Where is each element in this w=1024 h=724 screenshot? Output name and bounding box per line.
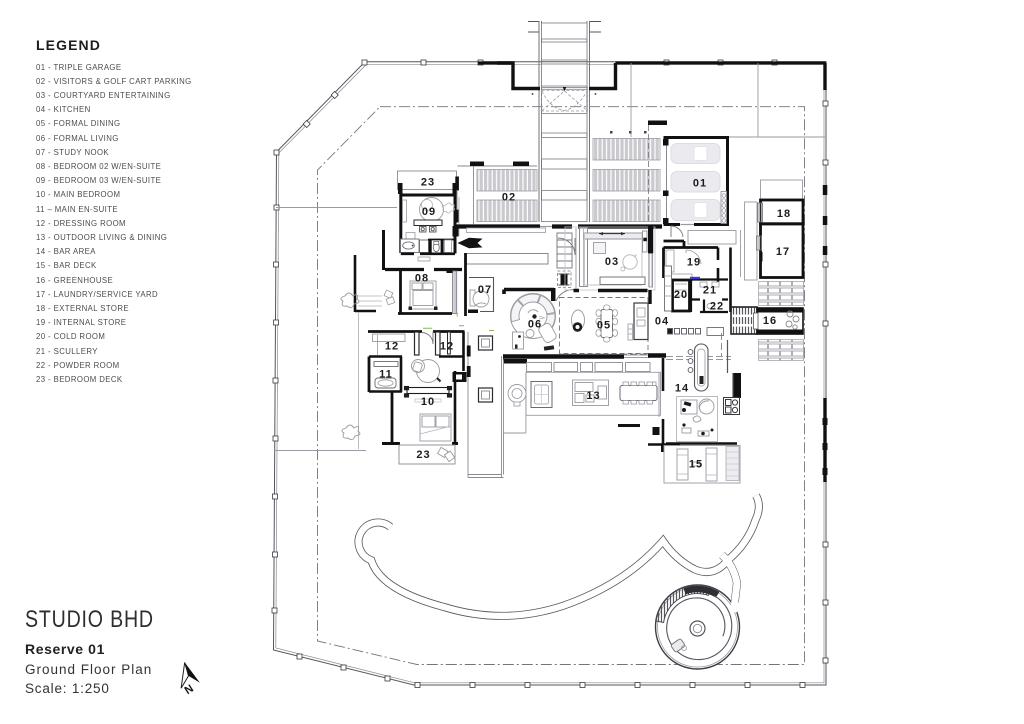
svg-text:21: 21 <box>703 285 717 297</box>
svg-text:03: 03 <box>605 256 619 268</box>
svg-text:16: 16 <box>763 315 777 327</box>
svg-text:11: 11 <box>379 369 393 381</box>
svg-text:06: 06 <box>528 319 542 331</box>
svg-text:23: 23 <box>416 449 430 461</box>
svg-text:17: 17 <box>776 246 790 258</box>
svg-text:10: 10 <box>421 396 435 408</box>
svg-text:15: 15 <box>689 459 703 471</box>
svg-text:23: 23 <box>421 177 435 189</box>
svg-text:20: 20 <box>674 289 688 301</box>
svg-text:N: N <box>183 683 196 697</box>
svg-text:12: 12 <box>385 341 399 353</box>
svg-text:22: 22 <box>710 301 724 313</box>
svg-text:04: 04 <box>655 316 669 328</box>
svg-text:02: 02 <box>502 192 516 204</box>
svg-text:01: 01 <box>693 178 707 190</box>
svg-text:07: 07 <box>478 284 492 296</box>
svg-text:09: 09 <box>422 206 436 218</box>
svg-text:08: 08 <box>415 273 429 285</box>
svg-text:19: 19 <box>687 257 701 269</box>
svg-text:05: 05 <box>597 320 611 332</box>
svg-text:12: 12 <box>440 341 454 353</box>
svg-text:14: 14 <box>675 383 689 395</box>
svg-text:13: 13 <box>586 390 600 402</box>
svg-text:18: 18 <box>777 208 791 220</box>
